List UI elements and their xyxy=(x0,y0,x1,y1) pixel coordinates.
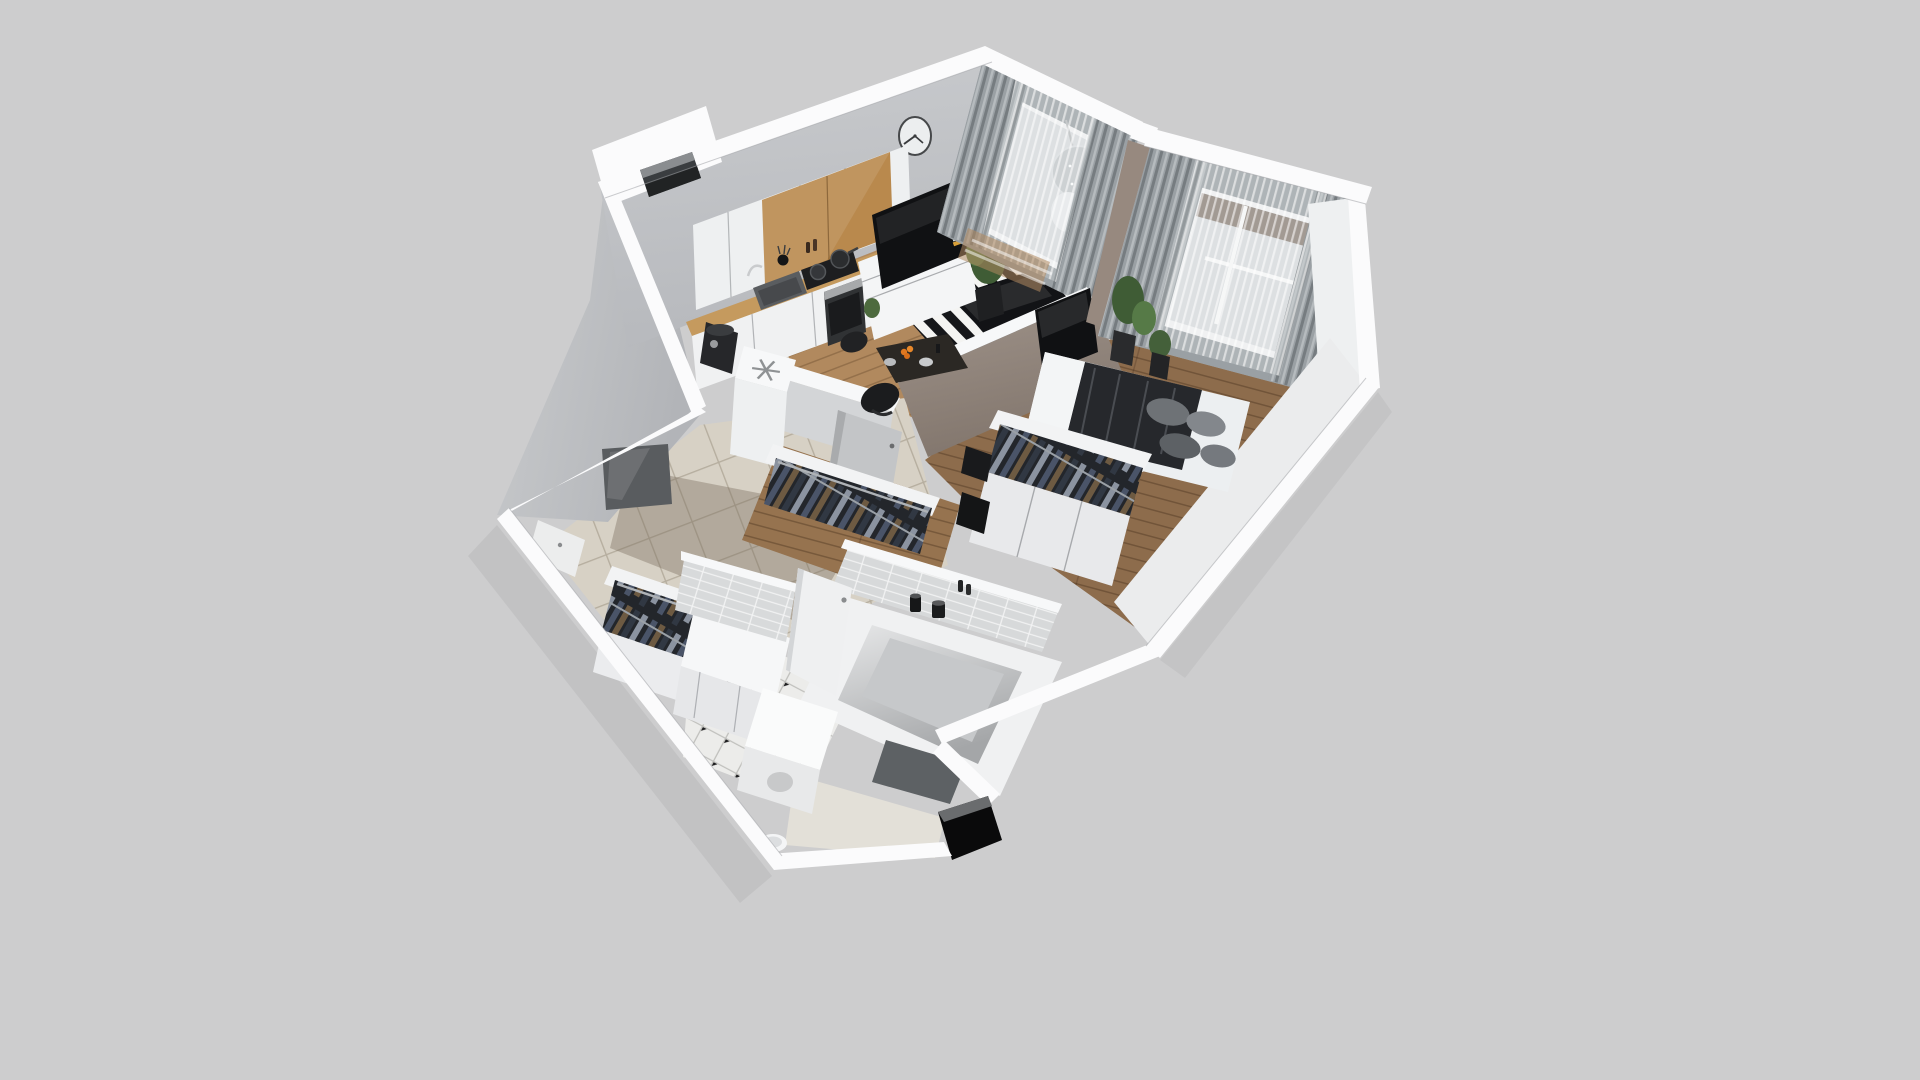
bottles xyxy=(958,580,963,592)
pot xyxy=(831,250,849,268)
small-plant xyxy=(864,298,880,318)
pan xyxy=(811,265,826,280)
pepper-mill xyxy=(806,242,810,253)
floorplan-render xyxy=(0,0,1920,1080)
utensil-crock xyxy=(778,255,789,266)
